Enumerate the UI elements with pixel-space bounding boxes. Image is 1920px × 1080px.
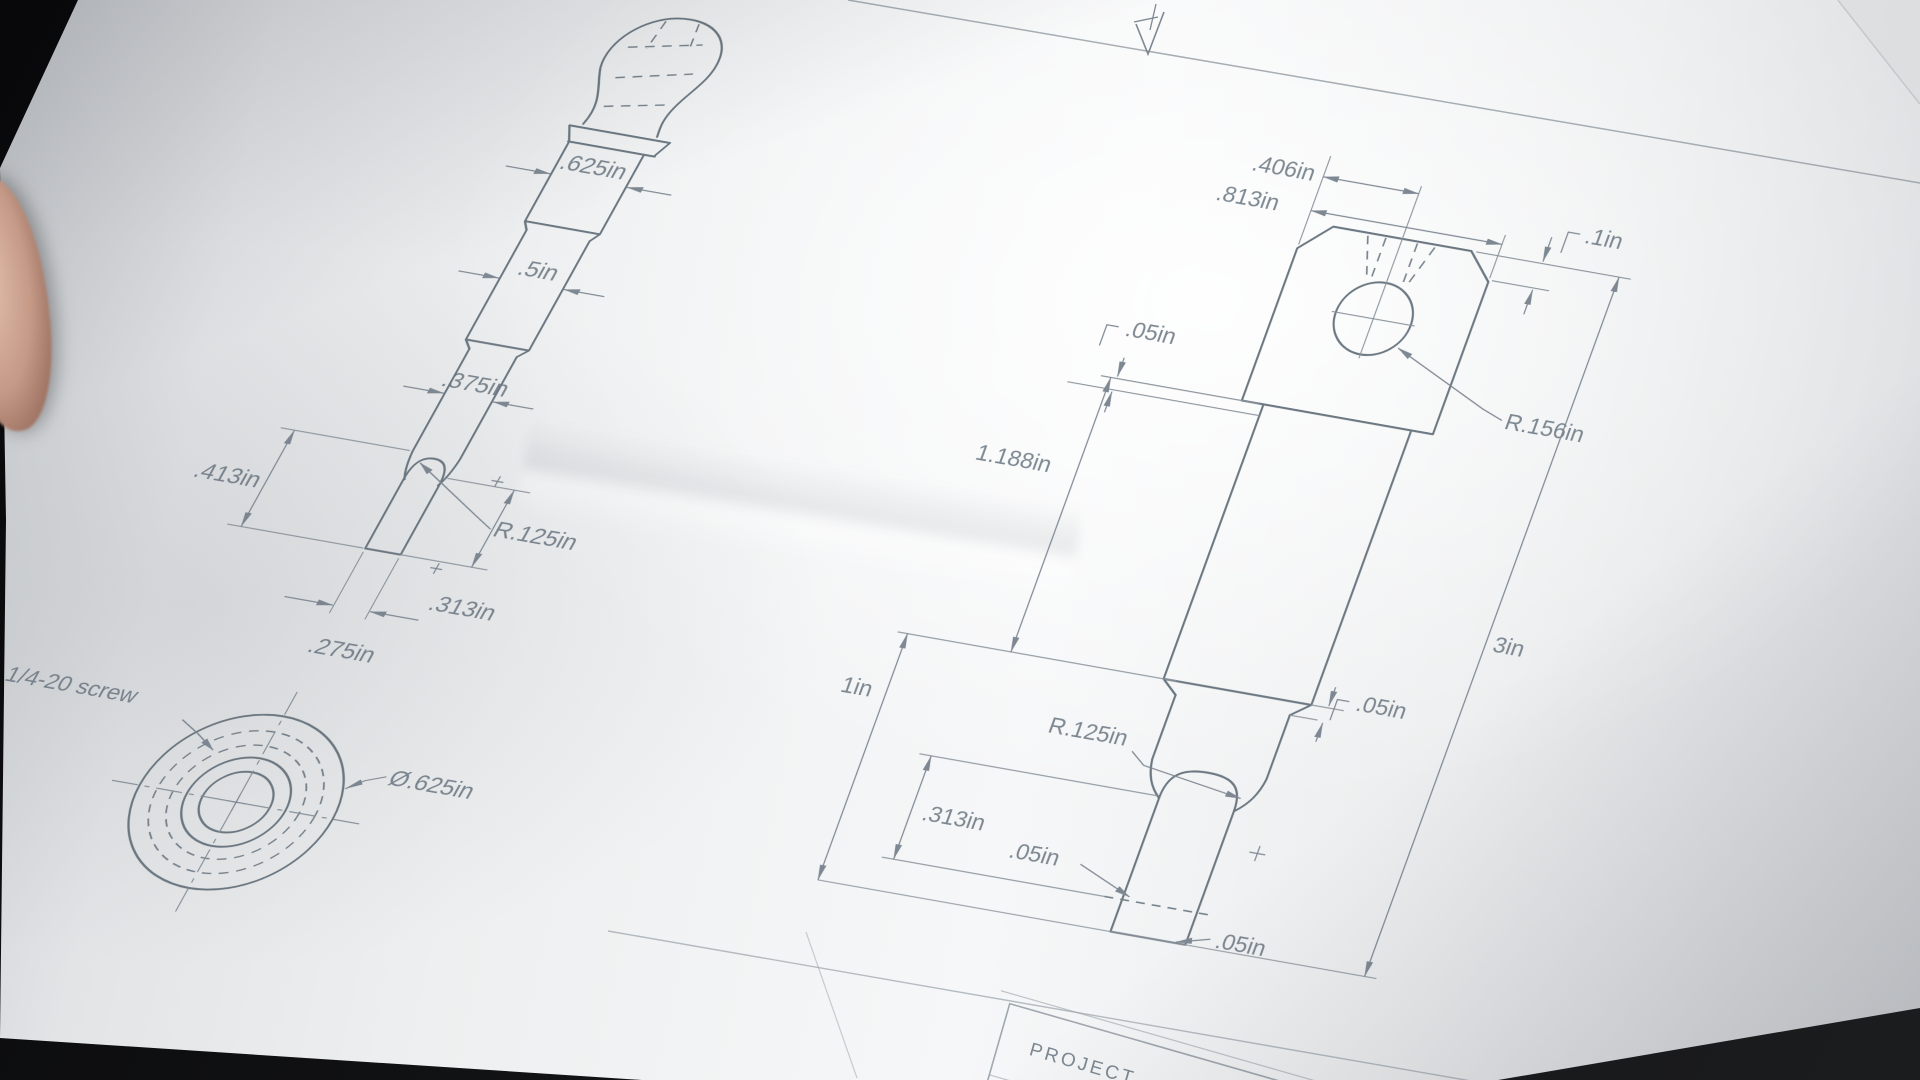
drawing-sheet: .625in .5in .375in .413in [0, 0, 1920, 1080]
surface-finish-icon [1134, 4, 1164, 54]
photo-of-blueprint: .625in .5in .375in .413in [0, 0, 1920, 1080]
sheet-border-lines [608, 0, 1920, 1080]
title-block: PROJECT LAT [910, 991, 1620, 1080]
title-block-label: PROJECT [1027, 1039, 1138, 1080]
sheet-extras: PROJECT LAT [0, 0, 1920, 1080]
